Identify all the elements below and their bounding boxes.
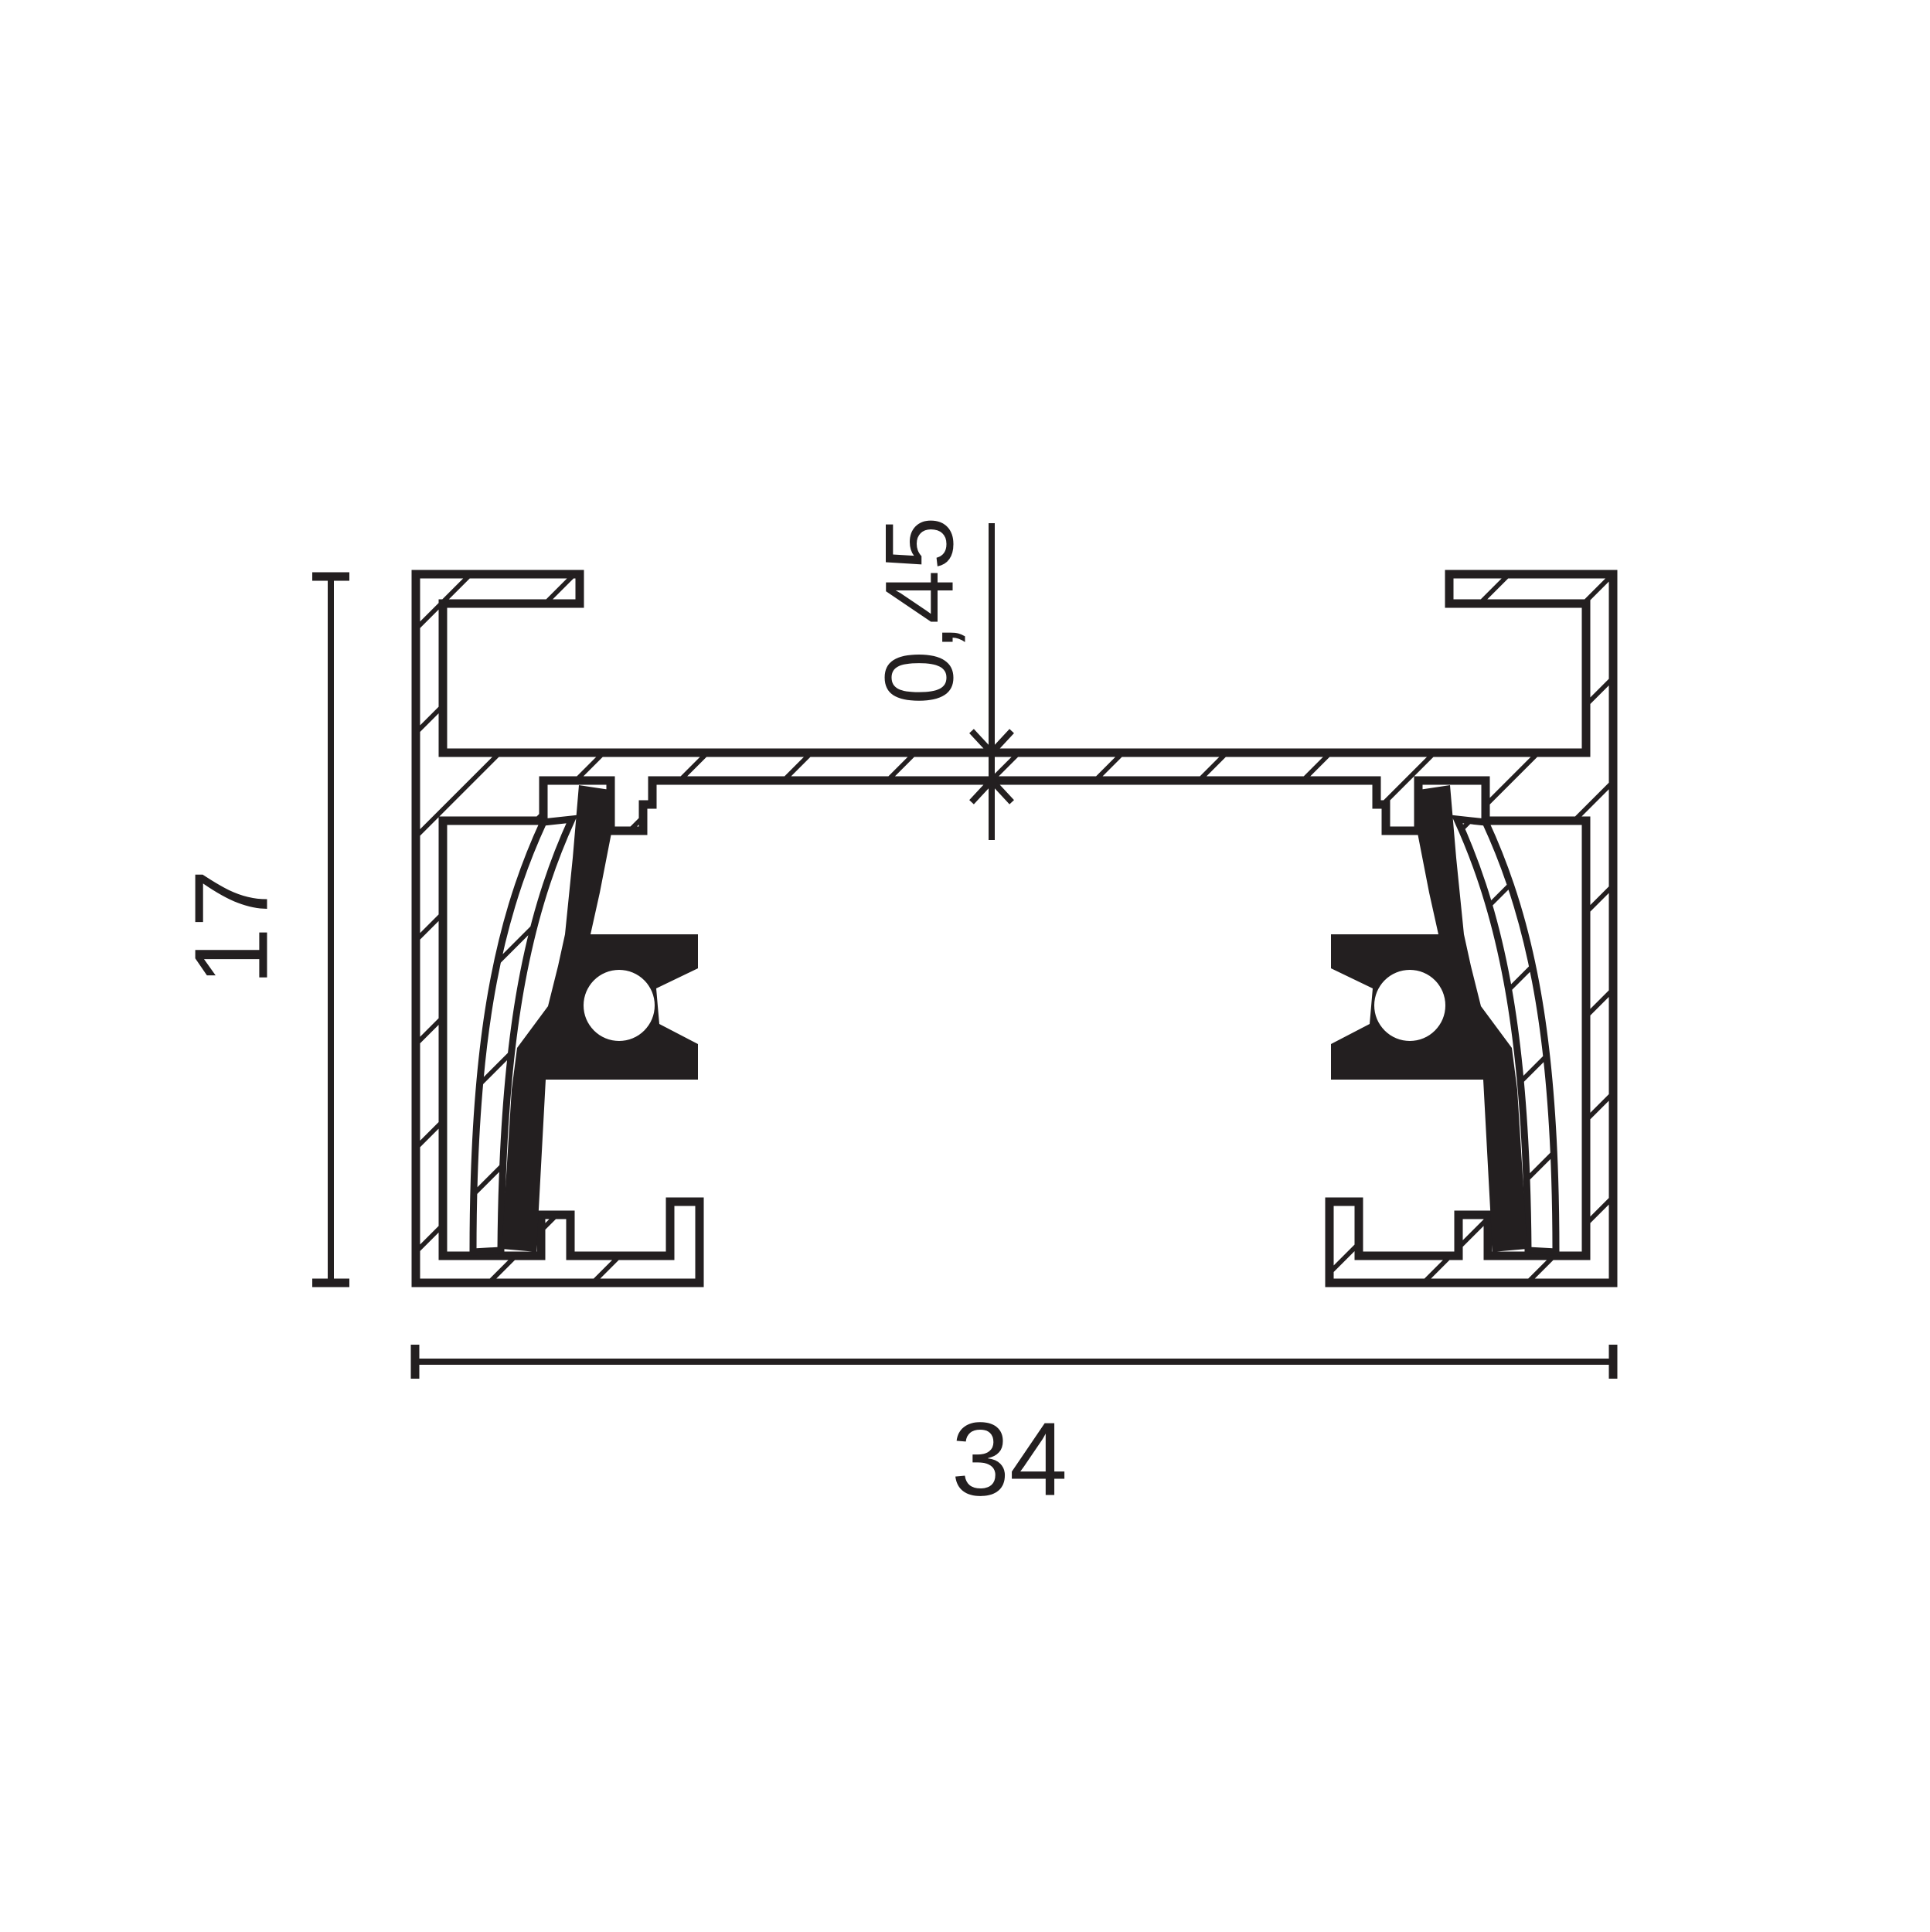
page-background bbox=[0, 0, 1930, 1932]
height-dimension-label: 17 bbox=[173, 869, 290, 985]
drawing-canvas: 17 34 0,45 bbox=[0, 0, 1930, 1932]
profile-cross-section-drawing: 17 34 0,45 bbox=[0, 0, 1930, 1932]
left-conductor-wire-hole bbox=[584, 970, 655, 1041]
width-dimension-label: 34 bbox=[951, 1401, 1067, 1518]
thickness-dimension-label: 0,45 bbox=[866, 516, 974, 704]
right-conductor-wire-hole bbox=[1374, 970, 1445, 1041]
